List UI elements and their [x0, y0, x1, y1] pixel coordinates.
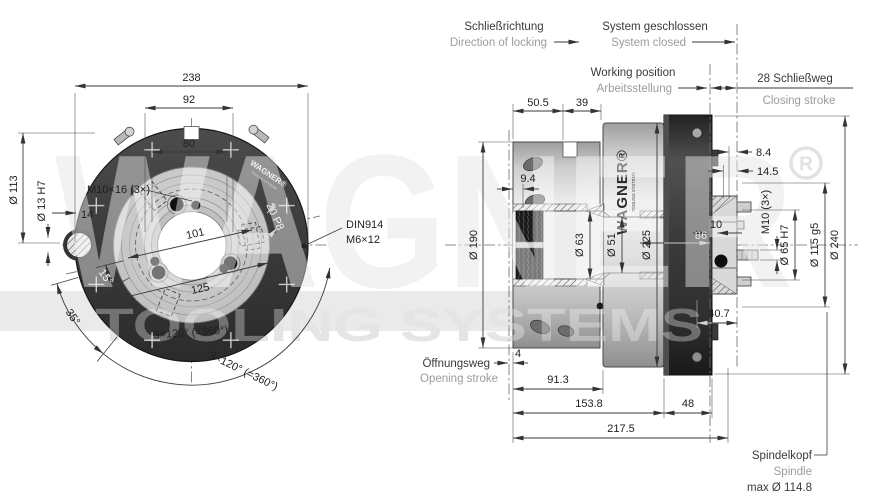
- dim-80: 80: [183, 138, 195, 150]
- label-system-closed-en: System closed: [611, 37, 686, 49]
- dim-48: 48: [682, 398, 694, 410]
- side-flange-240: [664, 115, 712, 375]
- dim-217-5: 217.5: [607, 423, 635, 435]
- label-opening-stroke-en: Opening stroke: [420, 373, 498, 385]
- label-schliessrichtung-en: Direction of locking: [450, 37, 547, 49]
- side-flange-screw-bottom: [692, 352, 702, 362]
- dim-92: 92: [183, 94, 195, 106]
- side-flange-edge-highlight: [664, 115, 669, 375]
- dim-238: 238: [182, 72, 200, 84]
- side-flange-screw-top: [692, 128, 702, 138]
- dim-50-5: 50.5: [527, 97, 548, 109]
- side-cylinder-notch: [563, 142, 577, 157]
- dim-d115g5: Ø 115 g5: [809, 223, 821, 267]
- label-spindle-en: Spindle: [774, 466, 812, 478]
- drawing-canvas: WAGNER R TOOLING SYSTEMS: [0, 0, 871, 500]
- dim-d113: Ø 113: [8, 175, 20, 204]
- dim-3x120-outer: 3×120° (=360°): [207, 350, 280, 394]
- dim-153-8: 153.8: [575, 398, 603, 410]
- dim-m10-3x: M10 (3×): [760, 190, 772, 234]
- dim-d65h7: Ø 65 H7: [779, 225, 791, 266]
- label-schliessrichtung-de: Schließrichtung: [464, 21, 543, 33]
- label-closing-stroke: Closing stroke: [763, 95, 836, 107]
- dim-d51: Ø 51: [606, 233, 618, 257]
- dim-d190: Ø 190: [468, 230, 480, 260]
- dim-d13h7: Ø 13 H7: [36, 181, 48, 222]
- dim-14: 14: [81, 209, 93, 221]
- dim-10: 10: [710, 219, 722, 231]
- label-schliessweg: 28 Schließweg: [757, 73, 832, 85]
- label-din914-1: DIN914: [346, 219, 383, 231]
- label-system-geschlossen-de: System geschlossen: [602, 21, 707, 33]
- label-working-position-en: Working position: [591, 67, 676, 79]
- dim-d63: Ø 63: [574, 233, 586, 257]
- dim-d225: Ø 225: [641, 230, 653, 260]
- label-m10x16: M10×16 (3×): [87, 184, 150, 196]
- svg-text:WAGNER®: WAGNER®: [614, 149, 631, 235]
- dim-d240: Ø 240: [829, 230, 841, 260]
- dim-9-4: 9.4: [520, 173, 535, 185]
- front-pin-hole-hatched: [67, 233, 92, 258]
- dim-86: 86: [695, 230, 707, 242]
- svg-text:TOOLING SYSTEMS: TOOLING SYSTEMS: [631, 172, 636, 212]
- side-flange-lug-bottom: [712, 324, 718, 340]
- label-spindelkopf-de: Spindelkopf: [752, 450, 813, 462]
- technical-drawing-page: WAGNER R TOOLING SYSTEMS: [0, 0, 871, 500]
- dim-40-7: 40.7: [708, 308, 729, 320]
- dim-14-5: 14.5: [757, 166, 778, 178]
- dim-8-4: 8.4: [756, 147, 771, 159]
- dim-4: 4: [515, 348, 521, 360]
- label-arbeitsstellung-de: Arbeitsstellung: [597, 83, 672, 95]
- dim-91-3: 91.3: [547, 374, 568, 386]
- watermark-registered-letter: R: [799, 154, 813, 175]
- label-oeffnungsweg-de: Öffnungsweg: [422, 358, 490, 370]
- label-din914-2: M6×12: [346, 234, 380, 246]
- label-spindle-max: max Ø 114.8: [747, 482, 812, 494]
- dim-39: 39: [576, 97, 588, 109]
